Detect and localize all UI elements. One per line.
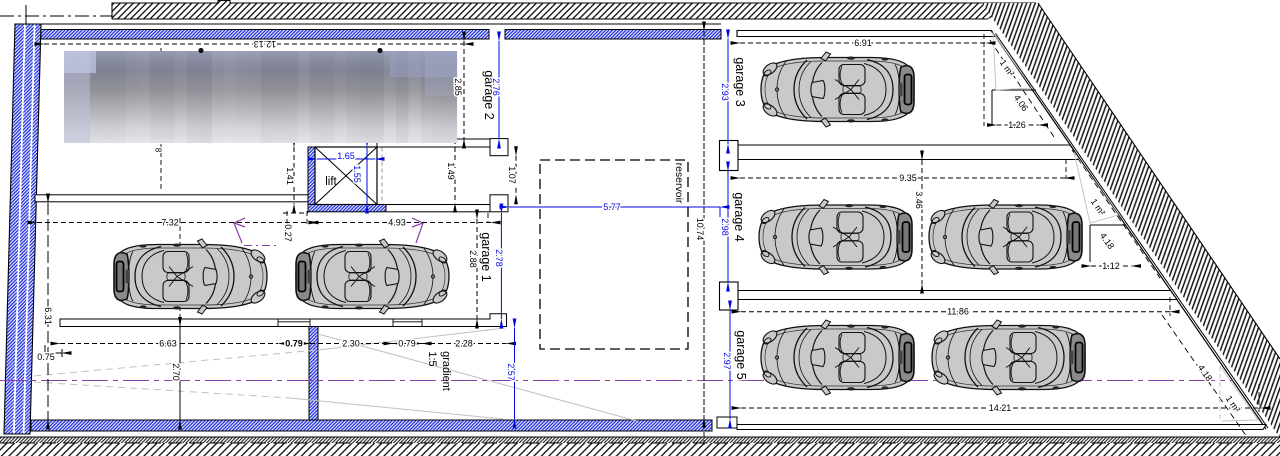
svg-text:2.28: 2.28 [455, 339, 473, 349]
svg-text:0.79: 0.79 [398, 339, 416, 349]
svg-text:12.13: 12.13 [254, 39, 277, 49]
svg-text:lift: lift [325, 176, 337, 188]
svg-text:gradient: gradient [440, 351, 452, 391]
svg-text:7.32: 7.32 [161, 218, 179, 228]
svg-text:2.85: 2.85 [453, 78, 463, 96]
svg-text:5.77: 5.77 [603, 202, 621, 212]
svg-text:garage 4: garage 4 [732, 192, 746, 241]
svg-text:0.79: 0.79 [285, 339, 303, 349]
svg-text:1.41: 1.41 [285, 167, 295, 185]
svg-text:6.63: 6.63 [159, 339, 177, 349]
svg-text:2.98: 2.98 [720, 218, 730, 236]
svg-text:1.55: 1.55 [352, 165, 362, 183]
svg-text:0.27: 0.27 [283, 224, 293, 242]
svg-text:0.75: 0.75 [37, 352, 55, 362]
svg-text:8: 8 [154, 148, 163, 153]
svg-text:2.78: 2.78 [494, 249, 504, 267]
svg-text:garage 3: garage 3 [733, 57, 747, 106]
svg-text:reservoir: reservoir [673, 163, 685, 204]
svg-text:1:5: 1:5 [426, 351, 438, 366]
svg-text:4.93: 4.93 [388, 218, 406, 228]
svg-text:2.93: 2.93 [720, 83, 730, 101]
svg-text:2.30: 2.30 [342, 339, 360, 349]
svg-text:3.46: 3.46 [914, 191, 924, 209]
svg-text:1.65: 1.65 [337, 151, 355, 161]
svg-text:2.70: 2.70 [171, 363, 181, 381]
svg-text:2.57: 2.57 [506, 363, 516, 381]
svg-text:2.76: 2.76 [491, 78, 501, 96]
svg-text:6.31: 6.31 [43, 307, 53, 325]
svg-text:garage 1: garage 1 [479, 232, 493, 281]
svg-text:1.12: 1.12 [1102, 261, 1120, 271]
svg-text:14.21: 14.21 [989, 403, 1012, 413]
svg-text:6.91: 6.91 [854, 38, 872, 48]
svg-text:11.86: 11.86 [947, 307, 969, 317]
svg-text:1.49: 1.49 [446, 162, 456, 180]
svg-text:1.07: 1.07 [507, 166, 517, 184]
svg-text:10.74: 10.74 [695, 218, 705, 241]
svg-text:1.26: 1.26 [1008, 120, 1026, 130]
svg-text:2.97: 2.97 [722, 352, 732, 370]
svg-text:2.88: 2.88 [468, 250, 478, 268]
svg-text:garage 5: garage 5 [734, 330, 748, 379]
svg-text:9.35: 9.35 [899, 173, 917, 183]
